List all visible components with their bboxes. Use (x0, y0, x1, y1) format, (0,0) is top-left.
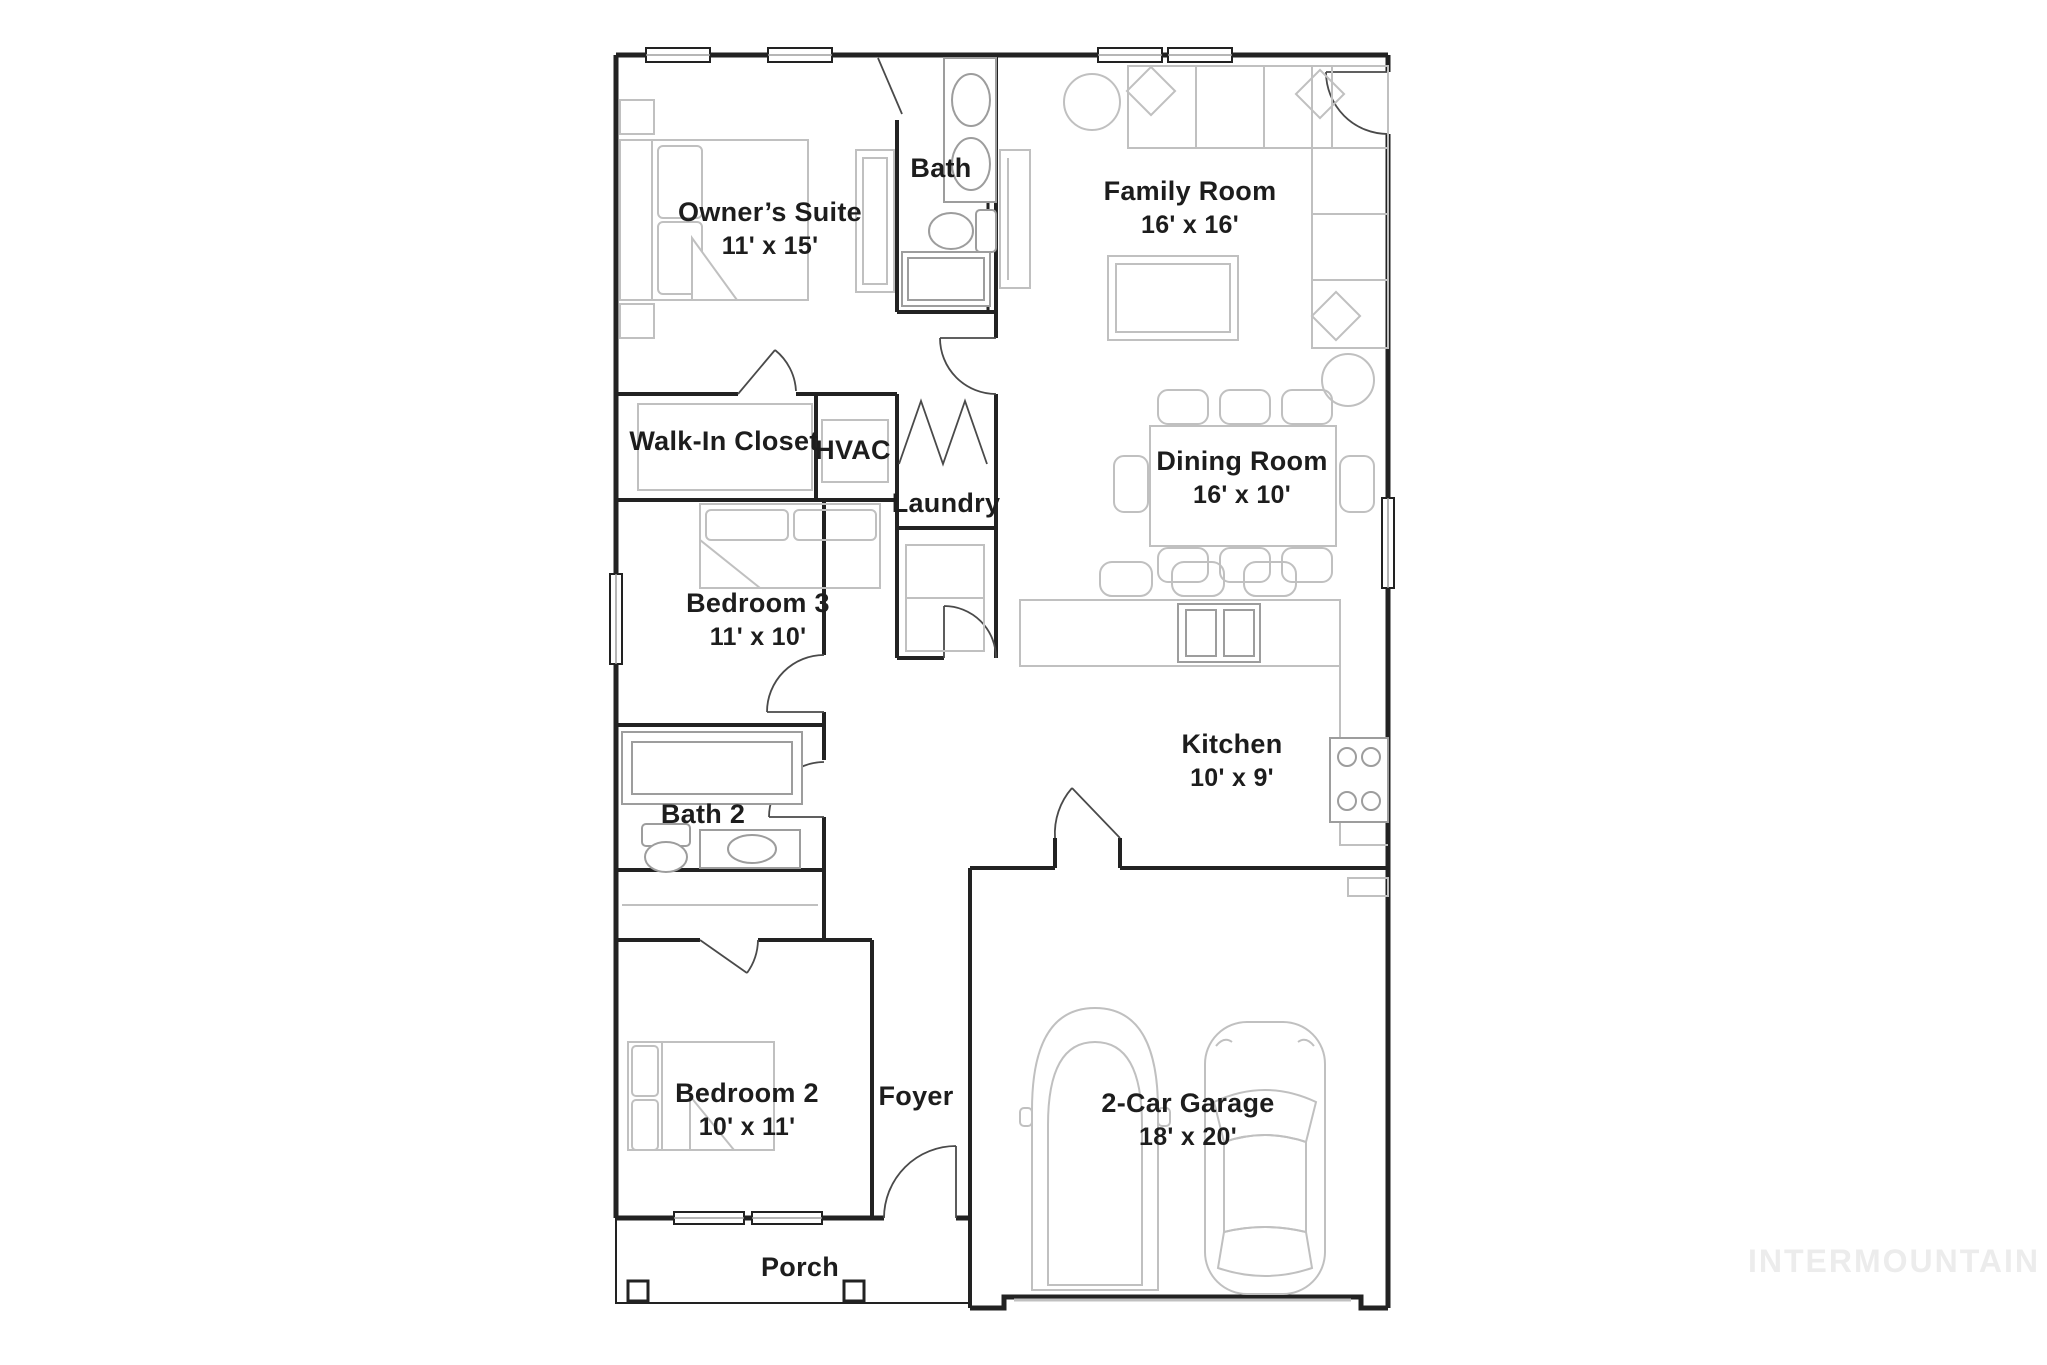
walk-in-closet-door (738, 350, 796, 394)
bar-stool (1100, 562, 1152, 596)
porch-post (844, 1281, 864, 1301)
round-side-table (1064, 74, 1120, 130)
bedroom3-label: Bedroom 3 (686, 588, 830, 618)
window (1098, 48, 1162, 62)
window (1382, 498, 1394, 588)
garage-entry-door (1055, 788, 1120, 838)
owners-suite-label: Owner’s Suite (678, 197, 862, 227)
garage-label: 2-Car Garage (1101, 1088, 1274, 1118)
nightstand (620, 100, 654, 134)
dining-chair (1282, 390, 1332, 424)
hvac-label: HVAC (815, 435, 891, 465)
sectional-sofa (1127, 66, 1388, 348)
round-side-table (1322, 354, 1374, 406)
pantry-shelves (906, 545, 984, 651)
toilet (929, 210, 996, 252)
bedroom3-furniture (700, 504, 880, 588)
owners-suite-dims: 11' x 15' (722, 232, 819, 260)
coffee-table (1108, 256, 1238, 340)
dining-chair (1340, 456, 1374, 512)
room-labels: Owner’s Suite 11' x 15' Bath Family Room… (629, 153, 1327, 1282)
bedroom2-door (700, 940, 758, 973)
bath2-label: Bath 2 (661, 799, 745, 829)
water-heater (1348, 878, 1388, 896)
media-console (1000, 150, 1030, 288)
kitchen-dims: 10' x 9' (1190, 764, 1274, 792)
dining-chair (1282, 548, 1332, 582)
bath-door (878, 58, 902, 114)
dining-chair (1220, 390, 1270, 424)
garage-contents (1014, 1008, 1351, 1300)
window (752, 1212, 822, 1224)
window (610, 574, 622, 664)
dining-chair (1158, 548, 1208, 582)
floor-plan: Owner’s Suite 11' x 15' Bath Family Room… (0, 0, 2047, 1365)
kitchen-label: Kitchen (1181, 729, 1282, 759)
laundry-bifold-doors (899, 401, 987, 464)
toilet (642, 824, 690, 872)
garage-dims: 18' x 20' (1139, 1123, 1237, 1151)
bar-stool (1172, 562, 1224, 596)
dining-chair (1158, 390, 1208, 424)
watermark: INTERMOUNTAIN (1748, 1243, 2040, 1279)
bedroom2-label: Bedroom 2 (675, 1078, 819, 1108)
foyer-label: Foyer (878, 1081, 953, 1111)
dining-room-dims: 16' x 10' (1193, 481, 1291, 509)
dining-chair (1114, 456, 1148, 512)
bedroom2-dims: 10' x 11' (699, 1113, 796, 1141)
nightstand (620, 304, 654, 338)
bedroom3-dims: 11' x 10' (710, 623, 807, 651)
window (768, 48, 832, 62)
floor-plan-page: Owner’s Suite 11' x 15' Bath Family Room… (0, 0, 2047, 1365)
tub (622, 732, 802, 804)
family-room-label: Family Room (1104, 176, 1277, 206)
car (1205, 1022, 1325, 1294)
bath-label: Bath (910, 153, 971, 183)
vanity (700, 830, 800, 868)
walk-in-closet-label: Walk-In Closet (629, 426, 818, 456)
dining-room-label: Dining Room (1156, 446, 1327, 476)
shower (902, 252, 990, 306)
family-room-dims: 16' x 16' (1141, 211, 1239, 239)
bedroom3-door (767, 655, 824, 712)
kitchen-sink (1178, 604, 1260, 662)
owners-suite-door (940, 338, 996, 394)
porch-post (628, 1281, 648, 1301)
bed (700, 504, 880, 588)
stove (1330, 738, 1388, 822)
front-door (884, 1146, 956, 1218)
window (646, 48, 710, 62)
window (1168, 48, 1232, 62)
laundry-label: Laundry (892, 488, 1001, 518)
window (674, 1212, 744, 1224)
porch-label: Porch (761, 1252, 839, 1282)
